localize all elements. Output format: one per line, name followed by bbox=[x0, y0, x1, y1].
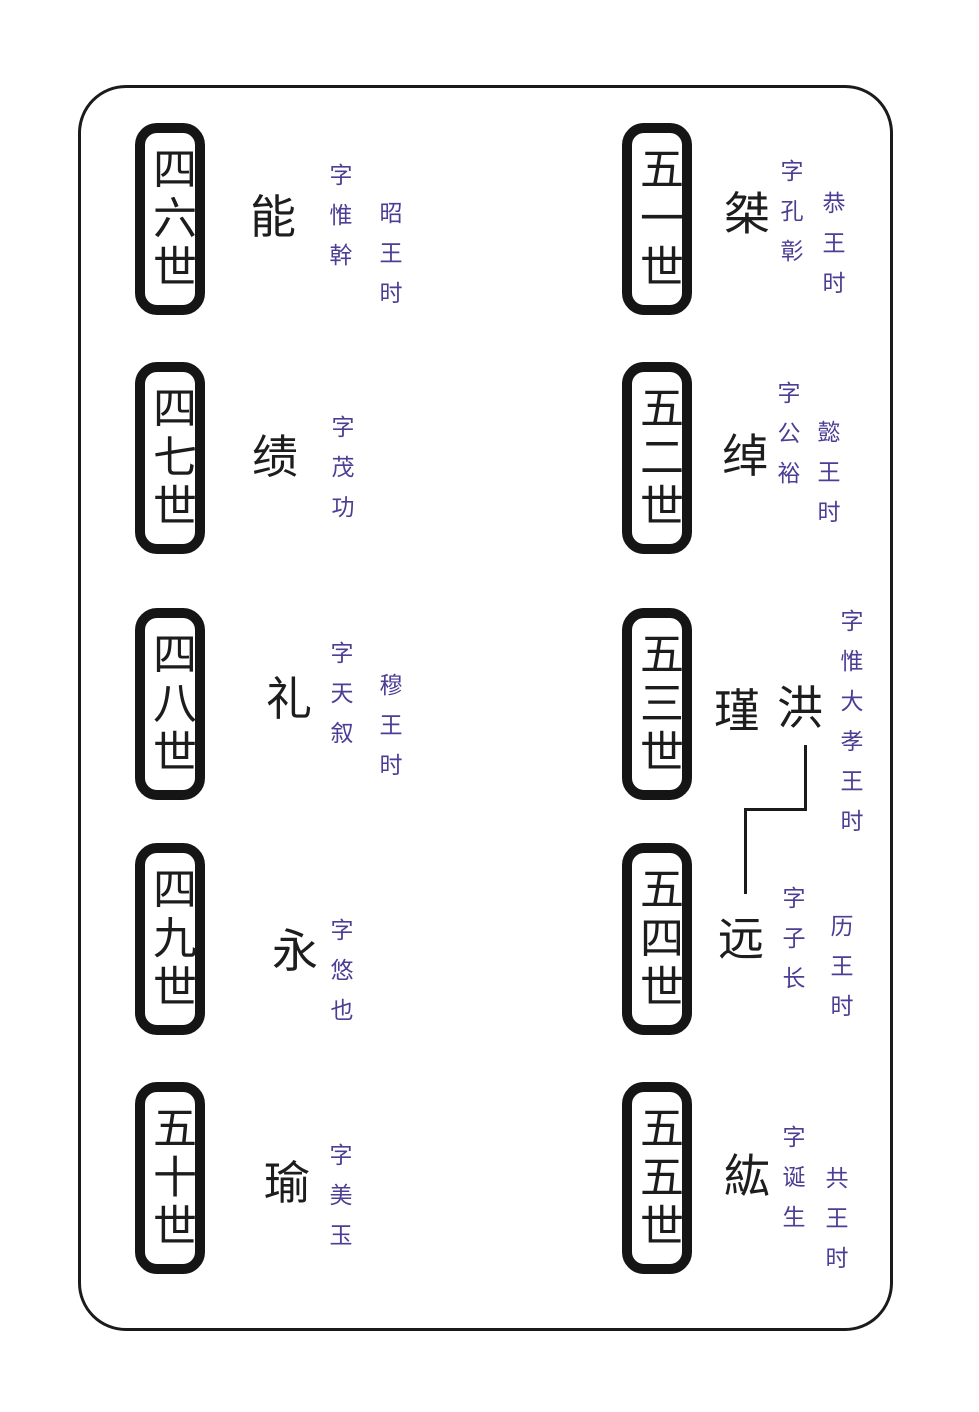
person-name: 桀 bbox=[724, 191, 770, 237]
person-name: 瑜 bbox=[264, 1160, 310, 1206]
era-annotation: 昭王时 bbox=[377, 201, 400, 321]
courtesy-name-annotation: 字公裕 bbox=[775, 381, 798, 501]
generation-box: 五二世 bbox=[622, 362, 692, 554]
generation-box: 五一世 bbox=[622, 123, 692, 315]
courtesy-name-annotation: 字惟大 bbox=[838, 609, 861, 729]
generation-label: 五十世 bbox=[148, 1105, 192, 1252]
lineage-connector-segment bbox=[804, 745, 807, 811]
generation-box: 四八世 bbox=[135, 608, 205, 800]
generation-box: 五四世 bbox=[622, 843, 692, 1035]
courtesy-name-annotation: 字天叙 bbox=[328, 641, 351, 761]
generation-label: 五一世 bbox=[635, 146, 679, 293]
generation-box: 五三世 bbox=[622, 608, 692, 800]
generation-label: 五三世 bbox=[635, 631, 679, 778]
person-name: 能 bbox=[250, 194, 296, 240]
generation-label: 五二世 bbox=[635, 385, 679, 532]
person-name: 远 bbox=[718, 916, 764, 962]
generation-label: 四六世 bbox=[148, 146, 192, 293]
person-name: 洪 bbox=[777, 685, 823, 731]
era-annotation: 恭王时 bbox=[820, 191, 843, 311]
courtesy-name-annotation: 字茂功 bbox=[329, 415, 352, 535]
courtesy-name-annotation: 字子长 bbox=[780, 886, 803, 1006]
generation-label: 四八世 bbox=[148, 631, 192, 778]
lineage-connector-segment bbox=[745, 808, 807, 811]
person-name: 绩 bbox=[252, 434, 298, 480]
era-annotation: 懿王时 bbox=[815, 420, 838, 540]
era-annotation: 历王时 bbox=[828, 914, 851, 1034]
courtesy-name-annotation: 字悠也 bbox=[328, 918, 351, 1038]
era-annotation: 共王时 bbox=[823, 1166, 846, 1286]
generation-box: 四九世 bbox=[135, 843, 205, 1035]
generation-box: 五五世 bbox=[622, 1082, 692, 1274]
person-name: 永 bbox=[272, 928, 318, 974]
generation-label: 五四世 bbox=[635, 866, 679, 1013]
generation-box: 四六世 bbox=[135, 123, 205, 315]
courtesy-name-annotation: 字诞生 bbox=[780, 1125, 803, 1245]
person-name: 瑾 bbox=[714, 688, 760, 734]
person-name: 绰 bbox=[722, 433, 768, 479]
generation-box: 四七世 bbox=[135, 362, 205, 554]
generation-label: 四七世 bbox=[148, 385, 192, 532]
person-name: 礼 bbox=[266, 676, 312, 722]
lineage-connector-segment bbox=[744, 808, 747, 894]
genealogy-chart: 四六世 四七世 四八世 四九世 五十世 五一世 五二世 五三世 五四世 五五世 bbox=[0, 0, 979, 1412]
era-annotation: 穆王时 bbox=[377, 673, 400, 793]
generation-label: 四九世 bbox=[148, 866, 192, 1013]
courtesy-name-annotation: 字美玉 bbox=[327, 1143, 350, 1263]
courtesy-name-annotation: 字惟幹 bbox=[327, 163, 350, 283]
generation-label: 五五世 bbox=[635, 1105, 679, 1252]
generation-box: 五十世 bbox=[135, 1082, 205, 1274]
courtesy-name-annotation: 字孔彰 bbox=[778, 159, 801, 279]
era-annotation: 孝王时 bbox=[838, 729, 861, 849]
person-name: 紘 bbox=[724, 1153, 770, 1199]
